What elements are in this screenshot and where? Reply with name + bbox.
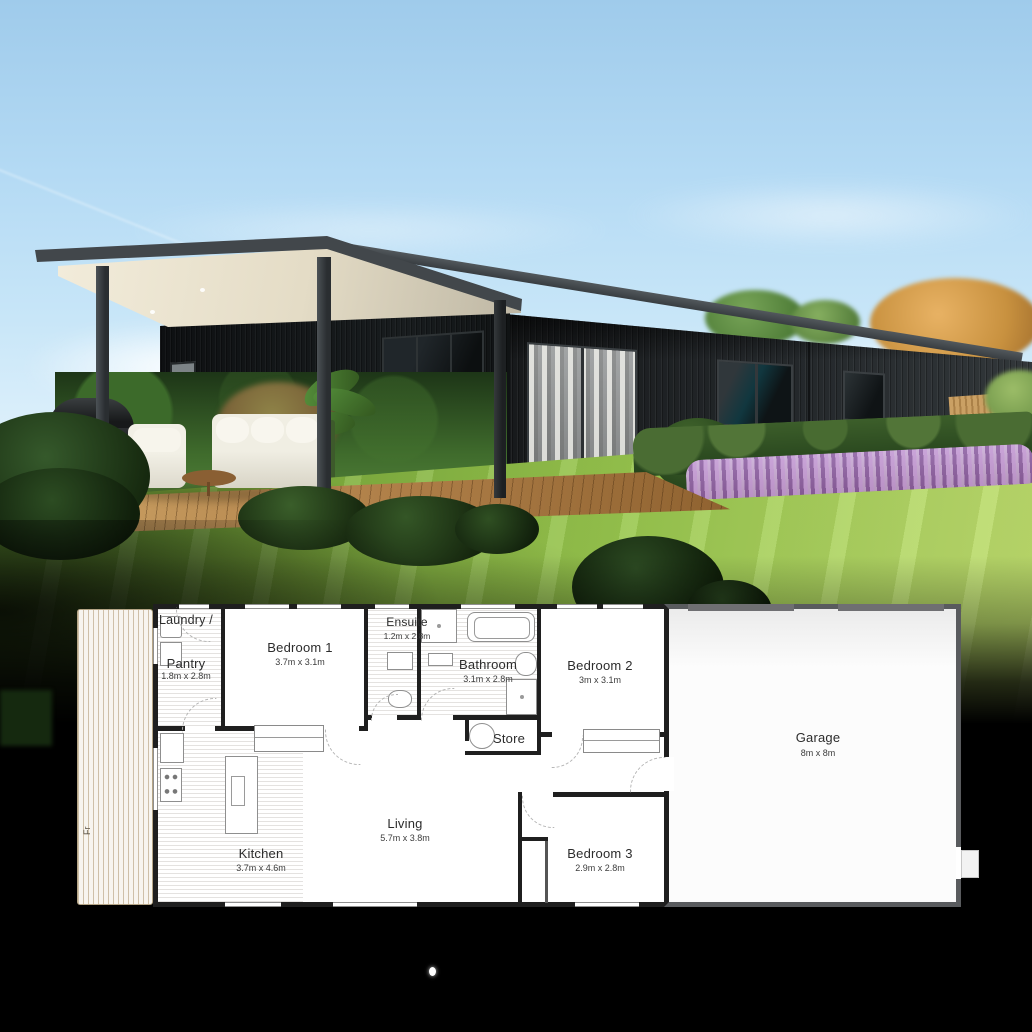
wall bbox=[397, 715, 421, 720]
wall bbox=[553, 792, 669, 797]
wall bbox=[518, 792, 522, 907]
wardrobe-icon bbox=[583, 729, 660, 753]
wardrobe-icon bbox=[254, 725, 324, 752]
deck-label: Fr bbox=[82, 815, 92, 835]
window-opening bbox=[297, 604, 341, 609]
room-label-laundry: Laundry / bbox=[159, 613, 231, 627]
room-dims-bedroom1: 3.7m x 3.1m bbox=[230, 657, 370, 667]
window-opening bbox=[557, 604, 597, 609]
room-dims-bedroom3: 2.9m x 2.8m bbox=[530, 863, 670, 873]
window bbox=[717, 359, 793, 430]
grass-patch bbox=[0, 690, 52, 746]
garage-side-step bbox=[961, 850, 979, 878]
window-opening bbox=[603, 604, 643, 609]
bathtub-icon bbox=[467, 612, 535, 642]
cloud bbox=[620, 180, 1032, 250]
sink-icon bbox=[387, 652, 413, 670]
room-label-living: Living bbox=[335, 816, 475, 831]
wall bbox=[215, 726, 254, 731]
downlight-icon bbox=[150, 310, 155, 314]
wall bbox=[359, 726, 368, 731]
window-opening bbox=[245, 604, 289, 609]
carousel-dot[interactable] bbox=[429, 967, 436, 976]
floor-plan: Fr bbox=[75, 600, 985, 915]
window-opening bbox=[375, 604, 409, 609]
window-opening bbox=[461, 604, 515, 609]
garage-door-opening bbox=[688, 604, 794, 611]
room-dims-kitchen: 3.7m x 4.6m bbox=[191, 863, 331, 873]
room-label-store: Store bbox=[479, 731, 539, 746]
sliding-door-opening bbox=[333, 902, 417, 907]
cooktop-icon bbox=[160, 768, 182, 802]
wall bbox=[541, 732, 552, 737]
door-opening bbox=[664, 757, 674, 791]
downlight-icon bbox=[200, 288, 205, 292]
room-dims-bedroom2: 3m x 3.1m bbox=[530, 675, 670, 685]
fridge-icon bbox=[160, 733, 184, 763]
garage-door-opening bbox=[838, 604, 944, 611]
room-label-kitchen: Kitchen bbox=[191, 846, 331, 861]
room-label-bedroom1: Bedroom 1 bbox=[230, 640, 370, 655]
wall bbox=[158, 726, 185, 731]
room-label-pantry: Pantry bbox=[151, 656, 221, 671]
patio-post bbox=[317, 257, 331, 509]
wall bbox=[465, 719, 469, 741]
room-label-bedroom3: Bedroom 3 bbox=[530, 846, 670, 861]
room-label-ensuite: Ensuite bbox=[375, 615, 439, 629]
sink-icon bbox=[231, 776, 245, 806]
wall bbox=[465, 751, 541, 755]
room-label-garage: Garage bbox=[738, 730, 898, 745]
deck-plan-area bbox=[77, 609, 153, 905]
room-dims-bathroom: 3.1m x 2.8m bbox=[438, 674, 538, 684]
room-dims-ensuite: 1.2m x 2.8m bbox=[371, 631, 443, 641]
hero-image: Fr bbox=[0, 0, 1032, 1032]
coffee-table bbox=[182, 466, 236, 494]
window bbox=[843, 371, 885, 424]
sliding-door-opening bbox=[225, 902, 281, 907]
window-mullion bbox=[755, 364, 758, 426]
patio-post bbox=[494, 300, 506, 498]
wall bbox=[660, 732, 669, 737]
window-opening bbox=[153, 748, 158, 810]
room-dims-garage: 8m x 8m bbox=[738, 748, 898, 758]
room-label-bedroom2: Bedroom 2 bbox=[530, 658, 670, 673]
window-opening bbox=[575, 902, 639, 907]
wall bbox=[364, 609, 368, 731]
room-label-bathroom: Bathroom bbox=[438, 657, 538, 672]
room-dims-pantry: 1.8m x 2.8m bbox=[147, 671, 225, 681]
room-dims-living: 5.7m x 3.8m bbox=[335, 833, 475, 843]
